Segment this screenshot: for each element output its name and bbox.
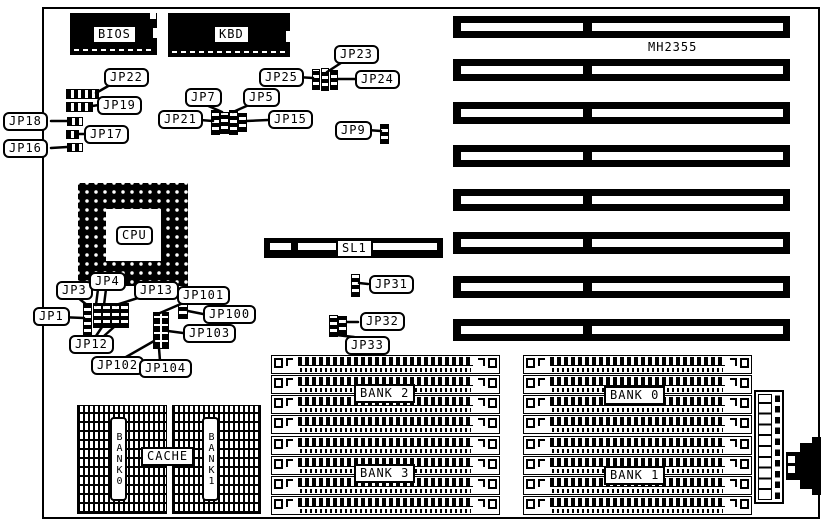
simm-socket [271, 355, 500, 374]
jumper-jp17-pins [66, 130, 79, 139]
keyboard-connector [800, 443, 813, 489]
simm-socket [523, 415, 752, 434]
jumper-label-jp13: JP13 [134, 281, 179, 300]
jumper-jp22-pins [66, 89, 99, 99]
jumper-label-jp17: JP17 [84, 125, 129, 144]
keyboard-connector-notch [788, 456, 795, 463]
kbd-chip-label: KBD [213, 25, 250, 44]
jumper-jp18-pins [67, 117, 83, 126]
cpu-label: CPU [116, 226, 153, 245]
jumper-jp33-pins [338, 316, 347, 335]
jumper-jp102-jp103-jp104-block [153, 312, 169, 349]
bios-chip-pins [74, 49, 153, 51]
motherboard-diagram: BIOS KBD MH2355 SL1 CPU [0, 0, 827, 527]
jumper-label-jp104: JP104 [139, 359, 192, 378]
sl1-slot-opening [298, 243, 338, 250]
jumper-label-jp3: JP3 [56, 281, 93, 300]
jumper-label-jp18: JP18 [3, 112, 48, 131]
jumper-label-jp25: JP25 [259, 68, 304, 87]
jumper-label-jp33: JP33 [345, 336, 390, 355]
sl1-slot-opening [270, 243, 291, 250]
jumper-label-jp7: JP7 [185, 88, 222, 107]
jumper-label-jp101: JP101 [177, 286, 230, 305]
bios-chip-notch [153, 28, 157, 38]
keyboard-connector [812, 437, 821, 495]
jumper-jp25-pins [312, 69, 320, 90]
keyboard-connector-notch [788, 466, 795, 473]
kbd-chip-pins [172, 51, 286, 53]
bank1-label: BANK 1 [604, 466, 665, 485]
isa-slot [453, 145, 790, 167]
jumper-label-jp12: JP12 [69, 335, 114, 354]
jumper-label-jp21: JP21 [158, 110, 203, 129]
isa-slot [453, 102, 790, 124]
jumper-jp23-pins [321, 68, 329, 91]
jumper-label-jp100: JP100 [203, 305, 256, 324]
jumper-label-jp19: JP19 [97, 96, 142, 115]
jumper-jp100-pins [178, 304, 188, 319]
bank2-label: BANK 2 [354, 384, 415, 403]
bios-chip-notch [150, 13, 156, 19]
isa-slot [453, 59, 790, 81]
jumper-jp13-pins [111, 303, 120, 328]
simm-socket [523, 355, 752, 374]
cache-bank0-label: BANK0 [110, 417, 127, 501]
jumper-label-jp24: JP24 [355, 70, 400, 89]
jumper-jp15-pins [238, 113, 247, 132]
jumper-jp5-pins [229, 110, 238, 135]
simm-socket [271, 436, 500, 455]
sl1-slot-opening [372, 243, 437, 250]
isa-slot [453, 16, 790, 38]
jumper-jp3-pins [93, 303, 102, 328]
jumper-label-jp4: JP4 [89, 272, 126, 291]
jumper-label-jp23: JP23 [334, 45, 379, 64]
jumper-label-jp16: JP16 [3, 139, 48, 158]
board-model-text: MH2355 [648, 40, 697, 54]
jumper-label-jp15: JP15 [268, 110, 313, 129]
jumper-label-jp5: JP5 [243, 88, 280, 107]
jumper-jp31-pins [351, 274, 360, 297]
jumper-jp9-pins [380, 124, 389, 144]
jumper-label-jp32: JP32 [360, 312, 405, 331]
power-connector [754, 390, 784, 504]
jumper-label-jp1: JP1 [33, 307, 70, 326]
isa-slot [453, 319, 790, 341]
bank0-label: BANK 0 [604, 386, 665, 405]
jumper-jp21-pins [211, 110, 220, 135]
cache-bank1-label: BANK1 [202, 417, 219, 501]
jumper-label-jp22: JP22 [104, 68, 149, 87]
isa-slot [453, 189, 790, 211]
bank3-label: BANK 3 [354, 464, 415, 483]
jumper-label-jp102: JP102 [91, 356, 144, 375]
isa-slot [453, 276, 790, 298]
jumper-jp12-pins [120, 303, 129, 328]
bios-chip-label: BIOS [92, 25, 137, 44]
jumper-label-jp103: JP103 [183, 324, 236, 343]
isa-slot [453, 232, 790, 254]
simm-socket [271, 496, 500, 515]
simm-socket [271, 415, 500, 434]
jumper-jp19-pins [66, 102, 93, 112]
jumper-jp7-pins [220, 112, 229, 134]
cache-label: CACHE [141, 447, 194, 466]
jumper-jp1-pins [83, 303, 92, 337]
jumper-label-jp9: JP9 [335, 121, 372, 140]
sl1-slot-label: SL1 [336, 239, 373, 258]
jumper-jp32-pins [329, 315, 338, 337]
jumper-jp4-pins [102, 303, 111, 328]
kbd-chip-notch [286, 31, 290, 42]
jumper-label-jp31: JP31 [369, 275, 414, 294]
jumper-jp16-pins [67, 143, 83, 152]
simm-socket [523, 436, 752, 455]
simm-socket [523, 496, 752, 515]
jumper-jp24-pins [330, 70, 338, 90]
